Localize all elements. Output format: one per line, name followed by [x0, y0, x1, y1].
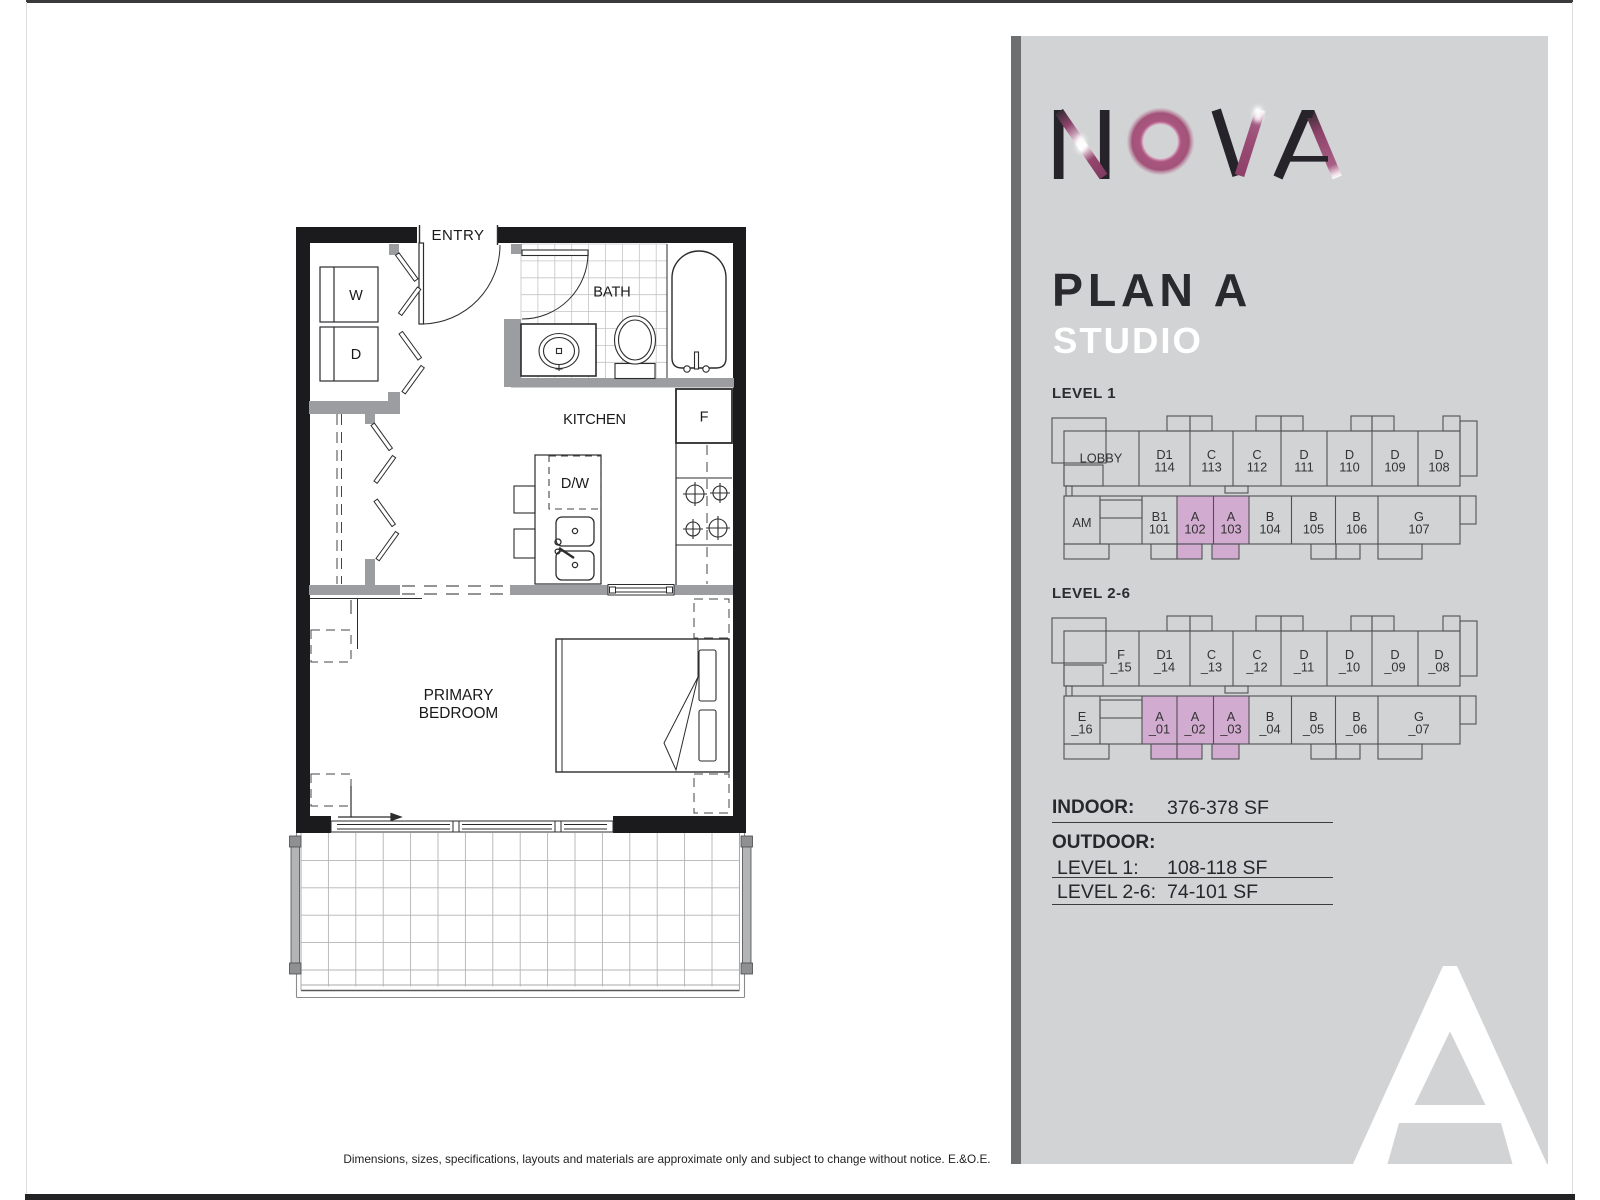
- svg-text:F: F: [700, 410, 709, 426]
- svg-text:114: 114: [1154, 460, 1174, 475]
- svg-text:_03: _03: [1219, 722, 1241, 737]
- svg-text:_12: _12: [1245, 660, 1267, 675]
- svg-text:_07: _07: [1407, 722, 1429, 737]
- svg-text:109: 109: [1384, 460, 1405, 475]
- svg-text:_15: _15: [1109, 660, 1131, 675]
- svg-text:110: 110: [1339, 460, 1359, 475]
- svg-text:_16: _16: [1070, 722, 1092, 737]
- svg-text:_05: _05: [1302, 722, 1324, 737]
- svg-text:105: 105: [1303, 522, 1324, 537]
- svg-text:LOBBY: LOBBY: [1080, 451, 1123, 466]
- svg-text:_13: _13: [1200, 660, 1222, 675]
- svg-text:AM: AM: [1072, 515, 1091, 530]
- svg-text:D: D: [351, 347, 361, 363]
- svg-text:106: 106: [1346, 522, 1367, 537]
- svg-text:103: 103: [1220, 522, 1241, 537]
- svg-text:104: 104: [1259, 522, 1280, 537]
- svg-text:_01: _01: [1148, 722, 1170, 737]
- svg-text:_04: _04: [1258, 722, 1280, 737]
- svg-text:113: 113: [1201, 460, 1221, 475]
- svg-text:BATH: BATH: [593, 285, 631, 301]
- svg-text:BEDROOM: BEDROOM: [419, 705, 499, 722]
- svg-text:D/W: D/W: [561, 476, 590, 492]
- svg-text:W: W: [349, 288, 363, 304]
- svg-text:_11: _11: [1293, 660, 1314, 675]
- svg-text:101: 101: [1149, 522, 1170, 537]
- svg-text:_10: _10: [1338, 660, 1360, 675]
- svg-text:KITCHEN: KITCHEN: [563, 412, 626, 428]
- svg-text:_14: _14: [1153, 660, 1175, 675]
- svg-text:112: 112: [1247, 460, 1267, 475]
- svg-text:ENTRY: ENTRY: [431, 227, 484, 244]
- svg-text:PRIMARY: PRIMARY: [424, 687, 494, 704]
- svg-text:102: 102: [1184, 522, 1205, 537]
- svg-text:107: 107: [1408, 522, 1429, 537]
- svg-text:_09: _09: [1383, 660, 1405, 675]
- svg-text:_08: _08: [1427, 660, 1449, 675]
- svg-text:111: 111: [1294, 460, 1313, 475]
- svg-text:_06: _06: [1345, 722, 1367, 737]
- svg-text:108: 108: [1428, 460, 1449, 475]
- svg-text:_02: _02: [1183, 722, 1205, 737]
